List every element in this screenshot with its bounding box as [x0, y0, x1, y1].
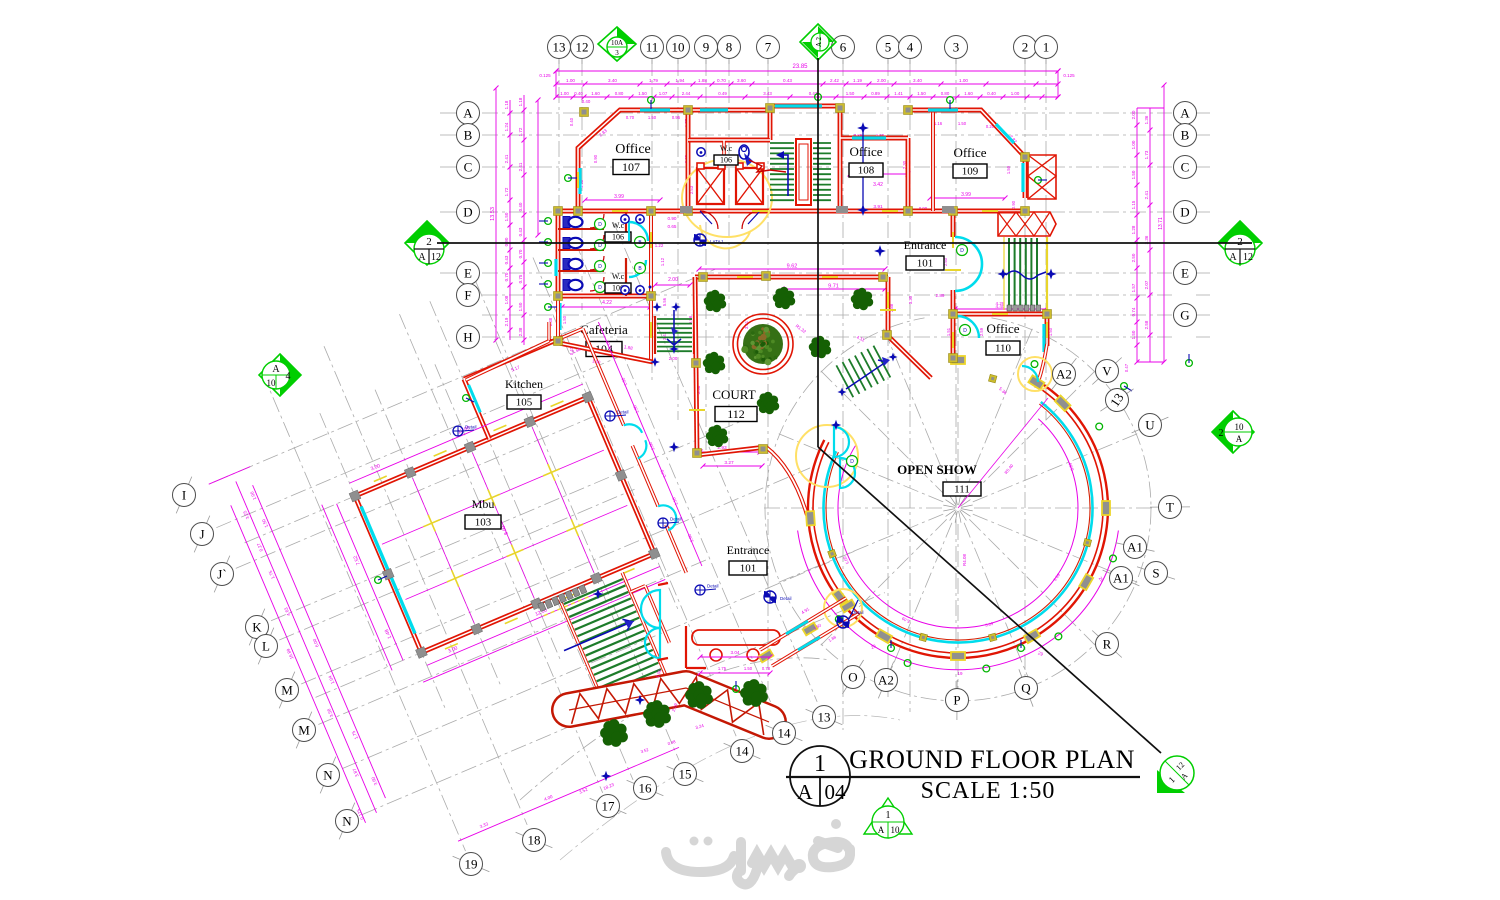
svg-text:1.72: 1.72 — [518, 127, 523, 136]
svg-text:6: 6 — [840, 39, 847, 54]
svg-text:10A: 10A — [611, 39, 623, 47]
svg-text:0.47: 0.47 — [1124, 363, 1129, 372]
svg-text:9: 9 — [703, 39, 710, 54]
svg-text:1.18: 1.18 — [504, 100, 509, 109]
svg-text:0.89: 0.89 — [871, 91, 880, 96]
svg-text:0.90: 0.90 — [668, 216, 677, 221]
svg-text:Kitchen: Kitchen — [505, 377, 543, 391]
svg-text:9.62: 9.62 — [787, 264, 798, 270]
svg-text:3.40: 3.40 — [913, 78, 922, 83]
svg-text:12: 12 — [576, 39, 589, 54]
svg-text:3.99: 3.99 — [614, 194, 624, 200]
svg-text:1.07: 1.07 — [659, 91, 668, 96]
svg-text:A: A — [463, 105, 473, 120]
svg-text:D: D — [1180, 204, 1189, 219]
svg-text:106: 106 — [612, 233, 624, 242]
svg-text:1.50: 1.50 — [1131, 330, 1136, 339]
svg-text:A2: A2 — [878, 672, 894, 687]
svg-text:1.50: 1.50 — [1006, 165, 1011, 174]
svg-text:A 2: A 2 — [815, 37, 823, 47]
svg-text:7: 7 — [765, 39, 772, 54]
svg-text:18: 18 — [528, 832, 541, 847]
svg-text:8: 8 — [726, 39, 733, 54]
svg-text:16: 16 — [639, 780, 653, 795]
svg-text:19: 19 — [957, 671, 963, 676]
svg-text:A: A — [1236, 434, 1243, 444]
svg-text:0.40: 0.40 — [518, 202, 523, 211]
svg-text:SCALE 1:50: SCALE 1:50 — [921, 778, 1056, 804]
svg-text:0.90: 0.90 — [504, 237, 509, 246]
svg-text:N: N — [342, 813, 352, 828]
svg-text:19: 19 — [465, 856, 478, 871]
svg-text:111: 111 — [954, 484, 970, 496]
svg-text:0.70: 0.70 — [518, 249, 523, 258]
svg-text:1.12: 1.12 — [660, 257, 665, 266]
svg-text:A1: A1 — [1113, 570, 1129, 585]
svg-text:2.42: 2.42 — [830, 78, 839, 83]
svg-text:A2: A2 — [1056, 366, 1072, 381]
svg-text:Office: Office — [954, 145, 987, 160]
svg-text:C: C — [1181, 159, 1190, 174]
svg-text:0.43: 0.43 — [518, 227, 523, 236]
svg-text:A1: A1 — [1127, 539, 1143, 554]
svg-text:M: M — [281, 682, 293, 697]
svg-text:0.43: 0.43 — [783, 78, 792, 83]
svg-text:A: A — [878, 825, 885, 835]
svg-text:101: 101 — [917, 258, 934, 270]
svg-text:0.65: 0.65 — [668, 224, 677, 229]
svg-text:Detail: Detail — [707, 584, 719, 589]
svg-text:2: 2 — [1022, 39, 1029, 54]
svg-text:15: 15 — [679, 766, 692, 781]
svg-text:I: I — [182, 487, 186, 502]
svg-text:0.78: 0.78 — [762, 666, 771, 671]
svg-text:J`: J` — [217, 566, 226, 581]
svg-text:109: 109 — [962, 166, 979, 178]
svg-text:1.00: 1.00 — [959, 78, 968, 83]
svg-text:13: 13 — [553, 39, 566, 54]
svg-text:110: 110 — [995, 343, 1012, 355]
svg-text:A: A — [272, 364, 280, 375]
svg-text:D: D — [463, 204, 472, 219]
svg-text:S: S — [1152, 565, 1159, 580]
svg-text:D: D — [960, 248, 964, 254]
svg-text:B: B — [464, 127, 473, 142]
svg-text:1.50: 1.50 — [648, 115, 657, 120]
svg-text:2: 2 — [1219, 428, 1224, 439]
svg-text:Detail: Detail — [780, 596, 792, 601]
svg-text:Detail: Detail — [852, 610, 864, 615]
svg-text:Office: Office — [850, 144, 883, 159]
svg-text:2: 2 — [1237, 236, 1243, 248]
svg-text:1.41: 1.41 — [894, 91, 903, 96]
svg-text:0.40: 0.40 — [582, 99, 591, 104]
svg-text:H: H — [463, 329, 472, 344]
svg-text:F: F — [464, 287, 471, 302]
svg-text:1.00: 1.00 — [1011, 91, 1020, 96]
svg-text:GROUND FLOOR PLAN: GROUND FLOOR PLAN — [849, 745, 1135, 774]
svg-text:1.51: 1.51 — [946, 327, 951, 336]
svg-text:2.41: 2.41 — [518, 162, 523, 171]
svg-text:0.125: 0.125 — [1063, 73, 1075, 78]
svg-text:1.16: 1.16 — [934, 121, 943, 126]
svg-text:C: C — [464, 159, 473, 174]
svg-text:2.44: 2.44 — [682, 91, 691, 96]
svg-text:0.70: 0.70 — [717, 78, 726, 83]
svg-text:10: 10 — [267, 378, 277, 388]
svg-text:D: D — [963, 328, 967, 334]
svg-text:13.53: 13.53 — [490, 207, 496, 221]
svg-text:0.40: 0.40 — [987, 91, 996, 96]
svg-text:T: T — [1166, 499, 1174, 514]
svg-text:12: 12 — [431, 252, 441, 263]
svg-text:3: 3 — [953, 39, 960, 54]
svg-text:J: J — [199, 526, 204, 541]
svg-text:1.50: 1.50 — [958, 121, 967, 126]
svg-text:2: 2 — [426, 236, 432, 248]
svg-text:0.70: 0.70 — [626, 115, 635, 120]
svg-text:1.00: 1.00 — [1131, 140, 1136, 149]
svg-text:4.22: 4.22 — [602, 300, 612, 306]
svg-text:4: 4 — [286, 371, 291, 382]
svg-text:11: 11 — [646, 39, 659, 54]
svg-text:Office: Office — [987, 321, 1020, 336]
svg-text:U: U — [1145, 417, 1155, 432]
svg-text:3.30: 3.30 — [908, 295, 913, 304]
svg-text:103: 103 — [475, 517, 492, 529]
svg-text:0.75: 0.75 — [518, 274, 523, 283]
svg-text:2.00: 2.00 — [877, 78, 886, 83]
svg-text:Q: Q — [1021, 680, 1031, 695]
svg-text:106: 106 — [720, 156, 732, 165]
svg-text:A: A — [418, 252, 426, 263]
svg-text:10: 10 — [672, 39, 685, 54]
svg-text:108: 108 — [858, 165, 875, 177]
svg-text:2.19: 2.19 — [504, 317, 509, 326]
svg-text:2.00: 2.00 — [668, 277, 678, 283]
svg-text:0.125: 0.125 — [539, 73, 551, 78]
svg-text:5.56: 5.56 — [662, 297, 667, 306]
svg-text:1.60: 1.60 — [964, 91, 973, 96]
svg-text:1.50: 1.50 — [1131, 170, 1136, 179]
svg-text:3.99: 3.99 — [961, 192, 971, 198]
svg-text:13.71: 13.71 — [1158, 217, 1164, 230]
svg-text:0.43: 0.43 — [504, 255, 509, 264]
svg-text:O: O — [848, 669, 857, 684]
svg-text:COURT: COURT — [712, 387, 755, 402]
svg-text:23.85: 23.85 — [792, 64, 808, 70]
svg-text:1.50: 1.50 — [744, 666, 753, 671]
svg-text:1.60: 1.60 — [591, 91, 600, 96]
svg-text:10: 10 — [1235, 422, 1245, 432]
svg-text:4: 4 — [907, 39, 914, 54]
svg-text:3.43: 3.43 — [763, 91, 772, 96]
svg-text:17: 17 — [602, 798, 616, 813]
svg-text:04: 04 — [825, 780, 847, 804]
svg-text:3: 3 — [615, 49, 619, 57]
svg-text:1.88: 1.88 — [698, 78, 707, 83]
svg-text:1.28: 1.28 — [1131, 225, 1136, 234]
svg-text:14: 14 — [736, 743, 750, 758]
svg-text:1.75: 1.75 — [718, 666, 727, 671]
svg-text:3.42: 3.42 — [873, 182, 883, 188]
svg-text:1.50: 1.50 — [504, 212, 509, 221]
svg-text:1.36: 1.36 — [1144, 115, 1149, 124]
svg-text:2.50: 2.50 — [1131, 253, 1136, 262]
svg-text:0.70: 0.70 — [504, 272, 509, 281]
svg-text:D: D — [598, 285, 602, 291]
svg-text:112: 112 — [727, 407, 745, 421]
svg-text:1.50: 1.50 — [638, 91, 647, 96]
svg-text:Office: Office — [615, 142, 651, 157]
svg-text:1.73: 1.73 — [1144, 150, 1149, 159]
svg-text:5: 5 — [885, 39, 892, 54]
svg-text:14: 14 — [778, 725, 792, 740]
svg-text:OPEN SHOW: OPEN SHOW — [897, 462, 977, 477]
svg-text:2.38: 2.38 — [518, 327, 523, 336]
svg-text:1.19: 1.19 — [853, 78, 862, 83]
svg-text:9.71: 9.71 — [828, 284, 839, 290]
svg-text:3.40: 3.40 — [608, 78, 617, 83]
svg-text:0.90: 0.90 — [593, 154, 598, 163]
svg-text:1: 1 — [814, 751, 826, 777]
svg-text:K: K — [252, 619, 262, 634]
svg-text:0.80: 0.80 — [615, 91, 624, 96]
svg-text:1.50: 1.50 — [518, 302, 523, 311]
svg-text:2.07: 2.07 — [1144, 280, 1149, 289]
svg-text:A: A — [1229, 252, 1237, 263]
svg-text:1.50: 1.50 — [846, 91, 855, 96]
svg-text:0.80: 0.80 — [941, 91, 950, 96]
svg-text:105: 105 — [516, 397, 533, 409]
svg-text:1: 1 — [1043, 39, 1050, 54]
svg-text:Detail: Detail — [670, 517, 682, 522]
svg-text:1.08: 1.08 — [504, 295, 509, 304]
svg-text:1: 1 — [886, 810, 891, 821]
svg-text:1.00: 1.00 — [560, 91, 569, 96]
svg-text:Detail: Detail — [617, 410, 629, 415]
svg-text:0.40: 0.40 — [574, 91, 583, 96]
svg-text:0.40: 0.40 — [569, 117, 574, 126]
svg-text:Entrance: Entrance — [727, 543, 770, 557]
svg-text:E: E — [464, 265, 472, 280]
svg-text:V: V — [1102, 363, 1112, 378]
svg-text:D: D — [850, 459, 854, 465]
svg-text:1.15: 1.15 — [1131, 200, 1136, 209]
svg-text:1.50: 1.50 — [917, 91, 926, 96]
svg-text:Entrance: Entrance — [904, 238, 947, 252]
svg-text:13: 13 — [818, 709, 831, 724]
svg-text:12: 12 — [1243, 252, 1253, 263]
svg-text:L: L — [262, 638, 270, 653]
svg-text:1.57: 1.57 — [1131, 283, 1136, 292]
svg-text:0.49: 0.49 — [718, 91, 727, 96]
svg-text:0.90: 0.90 — [1011, 200, 1016, 209]
svg-text:3.27: 3.27 — [724, 460, 734, 466]
svg-text:107: 107 — [622, 160, 640, 174]
svg-text:2.58: 2.58 — [1144, 320, 1149, 329]
svg-text:2.00: 2.00 — [1131, 110, 1136, 119]
svg-text:Mbu: Mbu — [472, 497, 495, 511]
svg-text:E: E — [1181, 265, 1189, 280]
svg-text:0.95: 0.95 — [672, 115, 681, 120]
svg-text:2.41: 2.41 — [504, 154, 509, 163]
svg-text:3.04: 3.04 — [731, 650, 740, 655]
svg-text:1.24: 1.24 — [504, 122, 509, 131]
svg-text:W.c: W.c — [612, 272, 625, 281]
svg-text:W.c: W.c — [720, 144, 733, 153]
svg-text:G: G — [1180, 307, 1189, 322]
svg-text:P: P — [953, 692, 960, 707]
svg-text:R4.08: R4.08 — [962, 554, 967, 567]
svg-text:1.50: 1.50 — [562, 315, 567, 324]
svg-text:R: R — [1103, 636, 1112, 651]
svg-text:3.60: 3.60 — [737, 78, 746, 83]
svg-text:1.94: 1.94 — [676, 78, 685, 83]
svg-text:D: D — [598, 222, 602, 228]
svg-text:2.00: 2.00 — [669, 356, 678, 361]
svg-text:10: 10 — [891, 825, 901, 835]
svg-text:A: A — [1180, 105, 1190, 120]
svg-text:101: 101 — [740, 563, 757, 575]
svg-text:N: N — [323, 767, 333, 782]
svg-text:D: D — [598, 264, 602, 270]
svg-text:B: B — [1181, 127, 1190, 142]
svg-text:2.41: 2.41 — [1144, 190, 1149, 199]
svg-text:M: M — [298, 722, 310, 737]
svg-text:1.00: 1.00 — [566, 78, 575, 83]
svg-text:1.72: 1.72 — [504, 187, 509, 196]
svg-text:0.74: 0.74 — [1131, 307, 1136, 316]
svg-text:A: A — [797, 780, 813, 804]
svg-text:1.79: 1.79 — [649, 78, 658, 83]
svg-text:Detail: Detail — [465, 425, 477, 430]
svg-text:2.89: 2.89 — [936, 293, 945, 298]
svg-text:1.18: 1.18 — [518, 97, 523, 106]
